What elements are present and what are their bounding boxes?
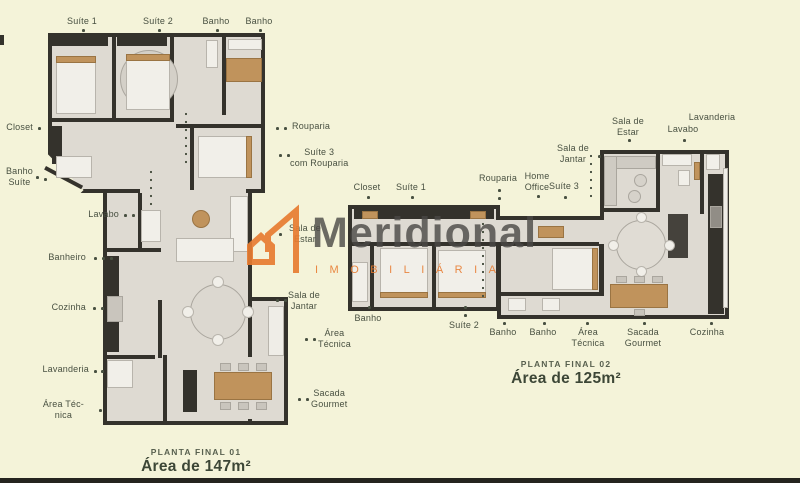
plan-02-caption-title: PLANTA FINAL 02	[511, 359, 621, 369]
pouf	[634, 174, 647, 187]
leader-dot	[598, 155, 601, 158]
room-label: Sacada Gourmet	[311, 388, 347, 409]
door	[694, 162, 700, 180]
leader-dot	[306, 398, 309, 401]
leader-dot	[101, 370, 104, 373]
wall	[501, 292, 599, 296]
plan-01-caption-area: Área de 147m²	[141, 458, 251, 476]
leader-dot	[124, 214, 127, 217]
headboard	[126, 54, 170, 61]
leader-dot	[284, 127, 287, 130]
leader-dot	[543, 322, 546, 325]
watermark: Meridional IMOBILIÁRIA	[246, 202, 537, 276]
room-label: Lavabo	[668, 124, 699, 135]
headboard	[592, 248, 598, 290]
leader-dot	[498, 189, 501, 192]
chair	[256, 402, 267, 410]
leader-dot	[101, 307, 104, 310]
chair	[238, 402, 249, 410]
vanity	[206, 40, 218, 68]
meridional-logo-icon	[246, 202, 302, 276]
round-dining-table	[616, 220, 666, 270]
room-label: Lavabo	[88, 209, 119, 220]
chair	[636, 212, 647, 223]
dotted-pointer-line	[150, 168, 152, 208]
room-label: Suíte 3 com Rouparia	[290, 147, 348, 168]
leader-dot	[298, 398, 301, 401]
wall	[158, 300, 162, 358]
technical-area-strip	[268, 306, 284, 356]
leader-dot	[305, 338, 308, 341]
leader-dot	[276, 127, 279, 130]
chair	[212, 334, 224, 346]
leader-dot	[284, 299, 287, 302]
decor-table	[192, 210, 210, 228]
leader-dot	[44, 178, 47, 181]
leader-dot	[93, 307, 96, 310]
grill-counter	[183, 370, 197, 412]
room-label: Banho Suíte	[6, 166, 33, 187]
chair	[256, 363, 267, 371]
round-dining-table	[190, 284, 246, 340]
plan-02-caption: PLANTA FINAL 02 Área de 125m²	[511, 359, 621, 388]
leader-dot	[279, 154, 282, 157]
lavabo-fixture	[662, 154, 692, 166]
leader-dot	[498, 197, 501, 200]
wall	[103, 355, 155, 359]
leader-dot	[564, 196, 567, 199]
lavabo-fixture	[678, 170, 690, 186]
sofa	[604, 156, 617, 206]
watermark-brand: Meridional	[312, 212, 537, 255]
kitchen-island	[668, 214, 688, 258]
wardrobe	[52, 37, 108, 46]
dotted-pointer-line	[590, 152, 592, 202]
leader-dot	[367, 196, 370, 199]
room-label: Sala de Jantar	[288, 290, 320, 311]
wall	[656, 154, 660, 212]
bed	[126, 54, 170, 110]
headboard	[56, 56, 96, 63]
room-label: Cozinha	[52, 302, 86, 313]
floor-patch	[597, 296, 607, 315]
room-label: Lavanderia	[689, 112, 736, 123]
chair	[634, 309, 645, 316]
leader-dot	[503, 322, 506, 325]
leader-dot	[132, 214, 135, 217]
leader-dot	[94, 257, 97, 260]
wall	[604, 208, 656, 212]
leader-dot	[710, 322, 713, 325]
room-label: Banho	[354, 313, 381, 324]
pouf	[628, 190, 641, 203]
sofa	[176, 238, 234, 262]
bathroom-fixture	[141, 210, 161, 242]
room-label: Banho	[245, 16, 272, 27]
laundry-fixture	[706, 154, 720, 170]
room-label: Sala de Estar	[612, 116, 644, 137]
leader-dot	[36, 176, 39, 179]
chair	[608, 240, 619, 251]
room-label: Área Técnica	[572, 327, 605, 348]
room-label: Rouparia	[292, 121, 330, 132]
leader-dot	[643, 322, 646, 325]
wall	[163, 355, 167, 421]
wall	[103, 248, 161, 252]
leader-dot	[158, 29, 161, 32]
chair	[182, 306, 194, 318]
leader-dot	[586, 322, 589, 325]
desk	[538, 226, 564, 238]
leader-dot	[102, 257, 105, 260]
floor-plans-canvas: PLANTA FINAL 01 Área de 147m² Suíte 1Suí…	[0, 0, 800, 483]
room-label: Área Técnica	[318, 328, 351, 349]
room-label: Banho	[489, 327, 516, 338]
room-label: Home Office	[525, 171, 550, 192]
kitchen-counter	[708, 174, 724, 314]
room-label: Closet	[354, 182, 381, 193]
wardrobe	[117, 37, 167, 46]
chair	[220, 402, 231, 410]
appliance	[710, 206, 722, 228]
bathroom-fixture	[508, 298, 526, 311]
leader-dot	[313, 338, 316, 341]
room-label: Lavanderia	[42, 364, 89, 375]
chair	[634, 276, 645, 283]
bottom-border-bar	[0, 478, 800, 483]
leader-dot	[259, 29, 262, 32]
leader-dot	[464, 314, 467, 317]
leader-dot	[537, 195, 540, 198]
headboard	[246, 136, 252, 178]
chair	[664, 240, 675, 251]
room-label: Cozinha	[690, 327, 724, 338]
leader-dot	[628, 139, 631, 142]
watermark-tagline: IMOBILIÁRIA	[312, 264, 537, 276]
wall	[52, 118, 174, 122]
room-label: Banheiro	[48, 252, 86, 263]
bed	[198, 136, 252, 178]
room-label: Suíte 2	[143, 16, 173, 27]
room-label: Suíte 1	[396, 182, 426, 193]
leader-dot	[94, 370, 97, 373]
plan-01-caption-title: PLANTA FINAL 01	[141, 447, 251, 457]
room-label: Suíte 1	[67, 16, 97, 27]
dotted-pointer-line	[185, 110, 187, 164]
leader-dot	[216, 29, 219, 32]
leader-dot	[110, 257, 113, 260]
room-label: Suíte 2	[449, 320, 479, 331]
chair	[616, 276, 627, 283]
leader-dot	[287, 154, 290, 157]
leader-dot	[99, 409, 102, 412]
room-label: Closet	[6, 122, 33, 133]
bath-cabinet	[226, 58, 262, 82]
leader-dot	[38, 127, 41, 130]
room-label: Rouparia	[479, 173, 517, 184]
watermark-text: Meridional IMOBILIÁRIA	[312, 202, 537, 276]
headboard	[438, 292, 486, 298]
chair	[652, 276, 663, 283]
balcony-strip	[723, 168, 728, 308]
plan-02-caption-area: Área de 125m²	[511, 370, 621, 388]
room-label: Sala de Jantar	[557, 143, 589, 164]
appliance	[107, 296, 123, 322]
room-label: Banho	[202, 16, 229, 27]
leader-dot	[276, 299, 279, 302]
room-label: Suíte 3	[549, 181, 579, 192]
leader-dot	[368, 306, 371, 309]
leader-dot	[683, 139, 686, 142]
chair	[220, 363, 231, 371]
room-label: Banho	[529, 327, 556, 338]
floor-patch	[597, 220, 607, 244]
chair	[242, 306, 254, 318]
balcony-table	[214, 372, 272, 400]
bathroom-fixture	[542, 298, 560, 311]
leader-dot	[464, 306, 467, 309]
room-label: Sacada Gourmet	[625, 327, 661, 348]
chair	[238, 363, 249, 371]
leader-dot	[82, 29, 85, 32]
leader-dot	[411, 196, 414, 199]
bed	[56, 56, 96, 114]
page-edge-mark	[0, 35, 4, 45]
bathtub	[56, 156, 92, 178]
washer	[107, 360, 133, 388]
wall	[190, 128, 194, 190]
room-label: Área Téc- nica	[43, 399, 84, 420]
balcony-table	[610, 284, 668, 308]
vanity	[228, 39, 262, 50]
chair	[212, 276, 224, 288]
wall	[112, 37, 116, 120]
headboard	[380, 292, 428, 298]
plan-01-caption: PLANTA FINAL 01 Área de 147m²	[141, 447, 251, 476]
wall	[700, 154, 704, 214]
